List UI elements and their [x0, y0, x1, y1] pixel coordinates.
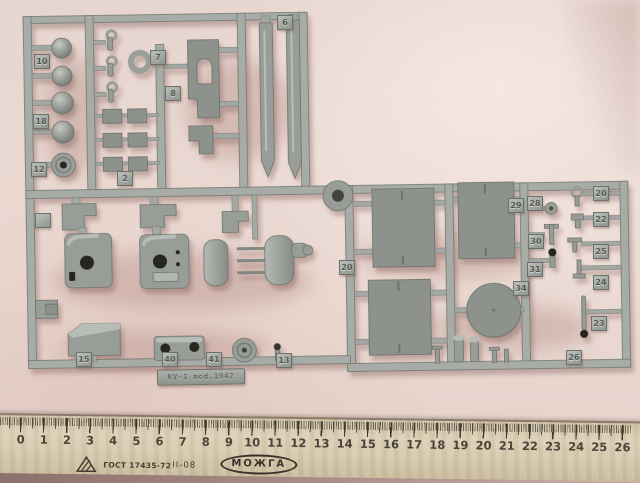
ruler-number: 21	[499, 439, 515, 453]
ruler-code: II-08	[172, 460, 196, 470]
ruler-number: 16	[383, 437, 399, 451]
block-grid-parts	[95, 109, 160, 172]
cylinder-part	[203, 194, 313, 286]
ruler-number: 15	[360, 437, 376, 451]
part-number-tag: 41	[206, 352, 222, 367]
ruler-number: 7	[179, 434, 187, 448]
box-part-2	[453, 182, 521, 259]
part-number-tag: 2	[117, 171, 133, 186]
ruler-number: 18	[429, 438, 445, 452]
ruler-standard: ГОСТ 17435-72	[103, 460, 171, 470]
part-number-tag: 31	[527, 262, 543, 277]
part-number-tag: 30	[528, 234, 544, 249]
part-number-tag: 15	[76, 352, 92, 367]
ruler-number: 22	[522, 439, 538, 453]
strip-parts	[259, 14, 302, 179]
part-number-tag: 20	[339, 260, 355, 275]
ruler-number: 1	[40, 433, 48, 447]
photo-model-kit-sprue-scene: KV-1 mod.1942 10181278262029283031342022…	[0, 0, 640, 483]
ruler-number: 23	[545, 439, 561, 453]
ruler-number: 5	[132, 434, 140, 448]
part-number-tag: 13	[276, 353, 292, 368]
ruler-number: 24	[568, 440, 584, 454]
ruler-number: 3	[86, 433, 94, 447]
ruler-number: 17	[406, 437, 422, 451]
part-number-tag: 23	[591, 316, 607, 331]
box-part-1	[353, 188, 446, 267]
part-number-tag: 26	[566, 350, 582, 365]
ruler-number: 10	[244, 435, 260, 449]
ruler-number: 4	[109, 434, 117, 448]
part-number-tag: 20	[593, 186, 609, 201]
wooden-ruler: 0123456789101112131415161718192021222324…	[0, 413, 640, 482]
ring-part	[323, 180, 353, 210]
part-number-tag: 12	[31, 162, 47, 177]
ruler-number: 26	[614, 440, 630, 454]
sprue-name-plate: KV-1 mod.1942	[157, 368, 245, 386]
ruler-number: 9	[225, 435, 233, 449]
part-number-tag: 8	[165, 86, 181, 101]
ruler-number: 14	[337, 437, 353, 451]
cab-part-1	[64, 227, 112, 288]
pulley-part	[232, 338, 256, 362]
sprue-image	[0, 0, 640, 483]
ruler-markings: ГОСТ 17435-72 II-08 МОЖГА	[0, 453, 640, 462]
sprue	[23, 7, 631, 376]
part-number-tag	[35, 213, 51, 228]
part-number-tag: 24	[593, 275, 609, 290]
part-number-tag: 6	[277, 15, 293, 30]
side-bracket-part	[36, 300, 58, 318]
part-number-tag: 34	[513, 281, 529, 296]
part-number-tag: 10	[34, 54, 50, 69]
part-number-tag: 7	[150, 50, 166, 65]
cab-part-2	[139, 226, 189, 289]
ruler-number: 0	[17, 432, 25, 446]
ruler-number: 20	[476, 438, 492, 452]
part-number-tag: 25	[593, 244, 609, 259]
part-number-tag: 40	[162, 352, 178, 367]
part-number-tag: 18	[33, 114, 49, 129]
box-part-3	[354, 279, 447, 355]
ruler-number: 11	[267, 436, 283, 450]
part-number-tag: 28	[527, 196, 543, 211]
ruler-number: 25	[591, 440, 607, 454]
ruler-number: 6	[155, 434, 163, 448]
factory-logo-icon	[75, 455, 97, 473]
part-number-tag: 22	[593, 212, 609, 227]
ruler-number: 8	[202, 435, 210, 449]
ruler-number: 12	[290, 436, 306, 450]
hook-parts	[93, 31, 117, 103]
part-number-tag: 29	[508, 198, 524, 213]
ruler-brand: МОЖГА	[220, 454, 297, 475]
ruler-number: 2	[63, 433, 71, 447]
ruler-number: 13	[313, 436, 329, 450]
ruler-number: 19	[452, 438, 468, 452]
